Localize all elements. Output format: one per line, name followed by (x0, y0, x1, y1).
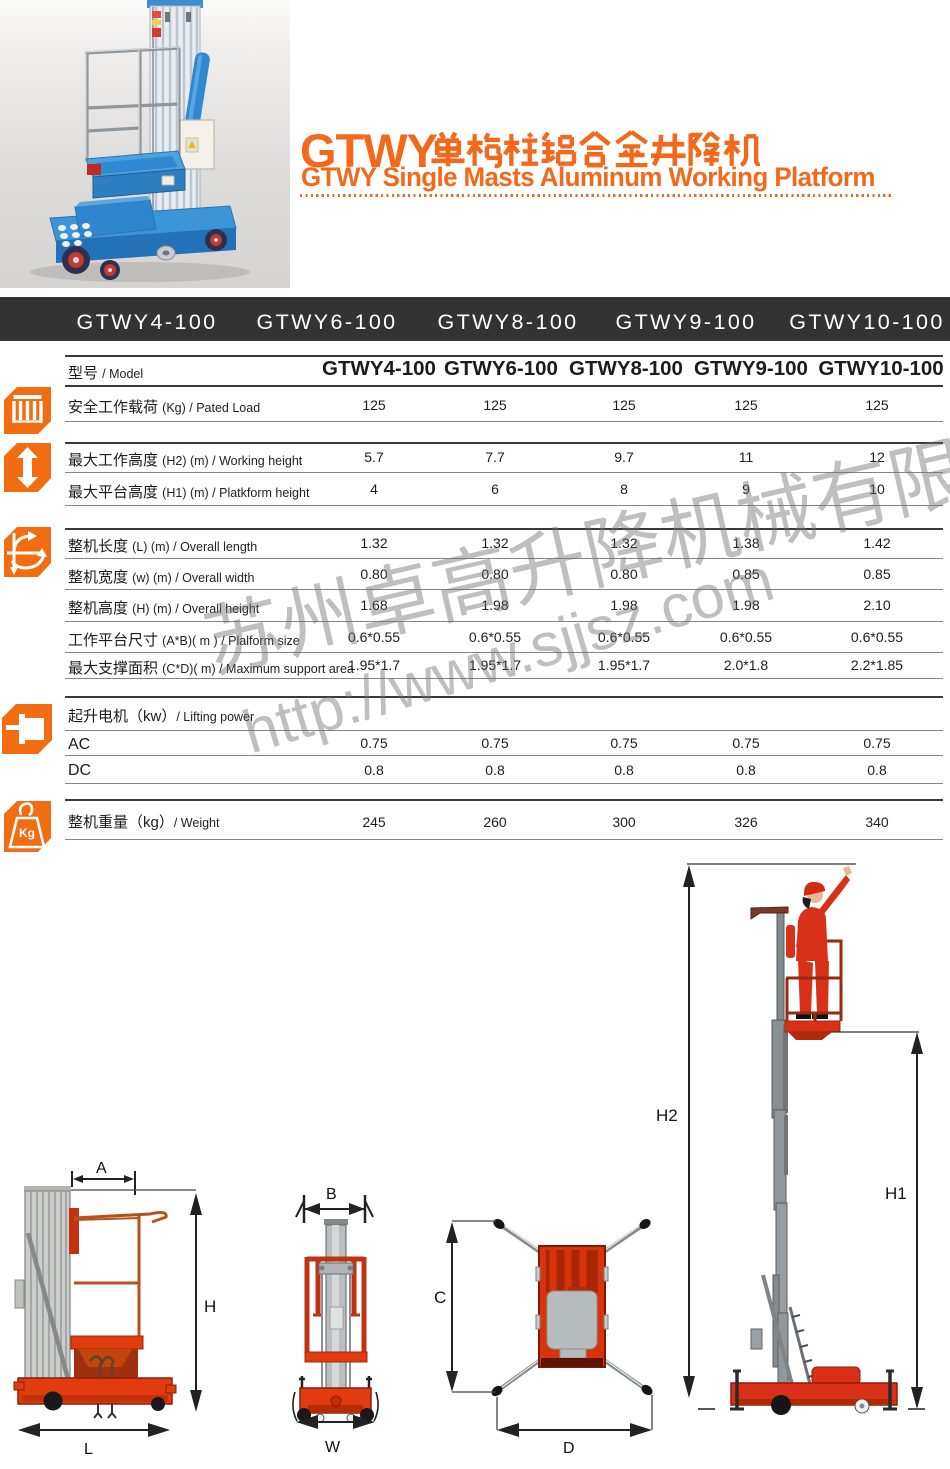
svg-text:C: C (434, 1288, 446, 1307)
svg-text:A: A (96, 1160, 107, 1177)
svg-text:L: L (84, 1441, 93, 1458)
svg-text:H: H (204, 1297, 216, 1316)
svg-text:H1: H1 (885, 1184, 907, 1203)
svg-text:H2: H2 (656, 1106, 678, 1125)
svg-text:B: B (326, 1186, 337, 1203)
svg-text:D: D (563, 1440, 575, 1457)
svg-text:Kg: Kg (19, 826, 35, 840)
svg-text:W: W (325, 1439, 341, 1456)
